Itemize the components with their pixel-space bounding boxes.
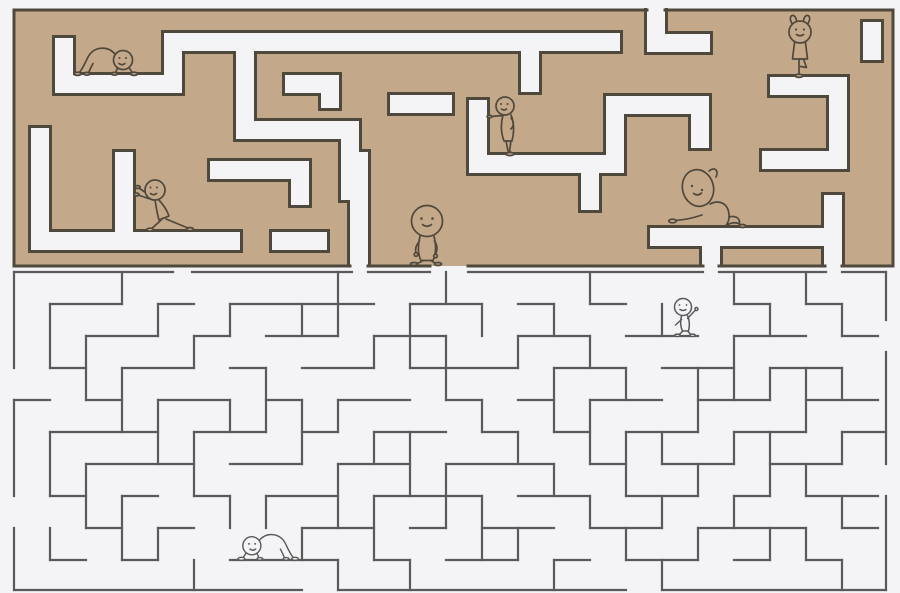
- maze-illustration: [0, 0, 900, 593]
- corridor-path: [469, 100, 487, 173]
- corridor-path: [390, 95, 452, 113]
- corridor-path: [31, 232, 240, 250]
- corridor-path: [863, 22, 881, 60]
- corridor-path: [272, 232, 327, 250]
- corridor-path: [521, 33, 539, 92]
- corridor-path: [691, 96, 709, 148]
- corridor-path: [581, 155, 599, 210]
- corridor-path: [236, 121, 359, 139]
- figure-crawler-bottom: [238, 535, 299, 561]
- corridor-path: [31, 128, 49, 250]
- corridor-path: [650, 228, 842, 246]
- corridor-path: [762, 151, 847, 169]
- bottom-line-maze: [14, 272, 886, 590]
- corridor-path: [291, 161, 309, 205]
- corridor-path: [824, 195, 842, 270]
- maze-scene: [0, 0, 900, 593]
- corridor-path: [350, 152, 368, 270]
- corridor-path: [647, 34, 710, 52]
- corridor-path: [469, 155, 624, 173]
- corridor-path: [321, 75, 339, 108]
- corridor-path: [55, 75, 182, 93]
- corridor-path: [164, 33, 620, 51]
- corridor-path: [115, 152, 133, 250]
- figure-waver: [675, 299, 699, 337]
- corridor-path: [702, 228, 720, 270]
